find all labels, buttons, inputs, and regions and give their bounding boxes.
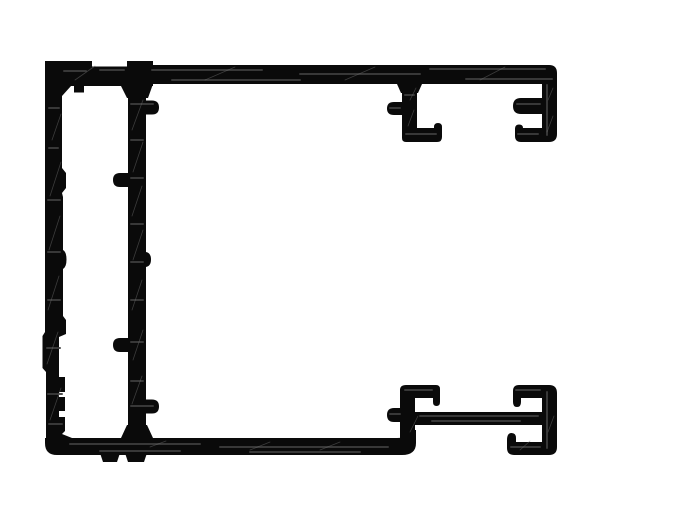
profile-textures	[47, 66, 554, 452]
profile-cutouts	[92, 58, 127, 67]
brushed-texture-streaks	[47, 69, 552, 452]
screw-boss-nub-left-upper	[113, 173, 128, 187]
screw-boss-nub-right-top	[146, 101, 159, 115]
extrusion-profile-drawing	[0, 0, 700, 525]
bottom-foot-left	[100, 453, 120, 462]
hatch-lines	[47, 66, 554, 450]
inner-web-flare-top	[120, 84, 153, 98]
web-bump-mid	[146, 252, 151, 267]
cavity-hang-tab	[74, 86, 84, 93]
top-groove-cutout	[92, 58, 127, 67]
wall-inner-fillet-top	[62, 86, 71, 96]
screw-boss-nub-left-lower	[113, 338, 128, 352]
bottom-right-mid-bar	[404, 412, 542, 425]
top-right-tee-fillet	[397, 84, 422, 93]
bottom-foot-right	[125, 453, 147, 462]
profile-solid-shapes	[43, 61, 558, 462]
inner-web-flare-bottom	[121, 425, 153, 438]
drawing-canvas	[0, 0, 700, 525]
